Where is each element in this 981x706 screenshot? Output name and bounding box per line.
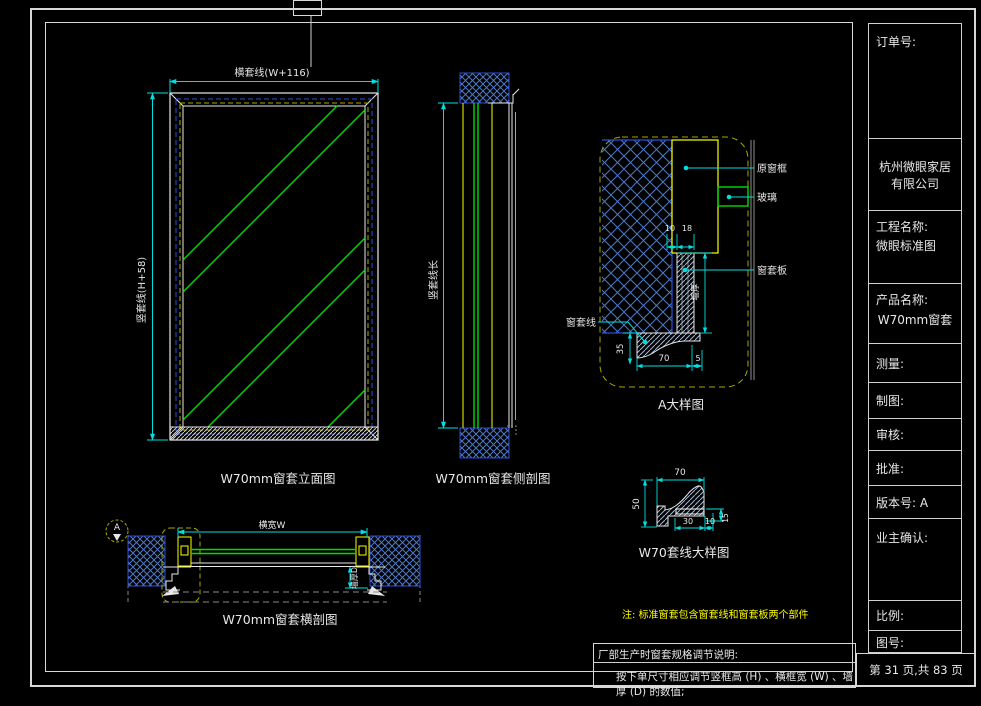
- wall-block-bottom: [460, 428, 509, 458]
- elevation-top-dimension: [170, 79, 378, 93]
- side-left-dimension: [438, 103, 458, 428]
- dim-70-label: 70: [659, 354, 670, 364]
- glass-diagonal-lines: [183, 106, 365, 427]
- label-glass: 玻璃: [757, 191, 777, 204]
- owner-confirm-label: 业主确认:: [869, 519, 961, 546]
- drawing-number-label: 图号:: [876, 634, 904, 651]
- review-label: 审核:: [876, 426, 904, 443]
- line-detail-dim-right: 15: [721, 513, 730, 523]
- measure-label: 测量:: [876, 355, 904, 372]
- product-row: 产品名称: W70mm窗套: [869, 284, 961, 344]
- measure-row: 测量:: [869, 344, 961, 383]
- instruction-box: 厂部生产时窗套规格调节说明: 按下单尺寸相应调节竖框高 (H) 、横框宽 (W)…: [593, 643, 856, 688]
- owner-confirm-row: 业主确认:: [869, 519, 961, 601]
- elevation-dim-left-label: 竖套线(H+58): [135, 257, 148, 324]
- version-label: 版本号: A: [876, 494, 928, 511]
- company-name-line2: 有限公司: [891, 175, 939, 192]
- label-casing-board: 窗套板: [757, 264, 787, 277]
- approve-label: 批准:: [876, 460, 904, 477]
- version-row: 版本号: A: [869, 486, 961, 519]
- elevation-view: 横套线(W+116) 竖套线(H+58) W70mm窗套立面图: [135, 66, 378, 486]
- horizontal-section-caption: W70mm窗套横剖图: [222, 612, 337, 627]
- standard-note: 注: 标准窗套包含窗套线和窗套板两个部件: [622, 606, 852, 621]
- product-value: W70mm窗套: [869, 308, 961, 328]
- order-number-row: 订单号:: [869, 24, 961, 139]
- title-block: 订单号: 杭州微眼家居 有限公司 工程名称: 微眼标准图 产品名称: W70mm…: [868, 23, 962, 653]
- instruction-box-title: 厂部生产时窗套规格调节说明:: [594, 644, 855, 663]
- wall-block-left: [128, 536, 165, 586]
- page-info: 第 31 页,共 83 页: [869, 662, 963, 678]
- line-detail-view: 70 50 30 10 15 W70套线大样图: [632, 468, 730, 560]
- sill-hatch-band: [170, 427, 378, 440]
- order-number-label: 订单号:: [869, 24, 961, 50]
- moulding-arrow-right: [368, 586, 385, 596]
- moulding-arrow-left: [162, 586, 179, 596]
- drawing-canvas: 横套线(W+116) 竖套线(H+58) W70mm窗套立面图: [0, 0, 981, 706]
- scale-row: 比例:: [869, 601, 961, 631]
- detail-a-view: 原窗框 玻璃 窗套板 窗套线 10 18 35: [566, 137, 787, 412]
- side-section-caption: W70mm窗套侧剖图: [435, 471, 550, 486]
- dim-18-label: 18: [682, 224, 692, 233]
- cad-sheet: 横套线(W+116) 竖套线(H+58) W70mm窗套立面图: [0, 0, 981, 706]
- project-row: 工程名称: 微眼标准图: [869, 211, 961, 284]
- product-label: 产品名称:: [869, 284, 961, 308]
- wall-hatch-area: [602, 140, 672, 333]
- side-dim-left-label: 竖套线长: [427, 260, 440, 300]
- review-row: 审核:: [869, 419, 961, 451]
- label-window-frame: 原窗框: [757, 162, 787, 175]
- drawing-number-row: 图号:: [869, 631, 961, 654]
- project-label: 工程名称:: [869, 211, 961, 235]
- dim-35-label: 35: [616, 344, 626, 355]
- horizontal-dim-top-label: 横宽W: [259, 519, 286, 531]
- callout-a-label: A: [114, 523, 121, 533]
- approve-row: 批准:: [869, 451, 961, 486]
- page-footer: 第 31 页,共 83 页: [856, 653, 976, 686]
- dim-10-label: 10: [665, 224, 675, 233]
- dim-wall-label: 墙厚: [690, 283, 701, 301]
- elevation-left-dimension: [147, 93, 168, 440]
- label-casing-line: 窗套线: [566, 316, 596, 329]
- horizontal-section-view: 横宽W 墙厚D A W70mm窗套横剖图: [106, 519, 420, 627]
- wall-block-top: [460, 73, 509, 103]
- line-detail-dim-bottom2: 10: [705, 517, 715, 526]
- line-detail-dim-left: 50: [632, 498, 642, 510]
- elevation-caption: W70mm窗套立面图: [220, 471, 335, 486]
- line-detail-caption: W70套线大样图: [639, 545, 730, 560]
- company-row: 杭州微眼家居 有限公司: [869, 139, 961, 211]
- casing-line-profile: [657, 486, 704, 526]
- line-detail-dim-top: 70: [674, 468, 686, 478]
- project-value: 微眼标准图: [869, 235, 961, 254]
- wall-block-right: [370, 536, 420, 586]
- dim-5-label: 5: [695, 354, 700, 363]
- instruction-box-content: 按下单尺寸相应调节竖框高 (H) 、横框宽 (W) 、墙厚 (D) 的数值;: [594, 663, 855, 699]
- jamb-left: [178, 537, 191, 566]
- draft-label: 制图:: [876, 392, 904, 409]
- company-name-line1: 杭州微眼家居: [879, 158, 951, 175]
- callout-triangle-icon: [113, 534, 121, 541]
- side-section-view: 竖套线长 W70mm窗套侧剖图: [427, 73, 551, 486]
- elevation-dim-top-label: 横套线(W+116): [234, 66, 309, 79]
- line-detail-dim-bottom1: 30: [683, 517, 693, 526]
- jamb-right: [356, 537, 369, 566]
- horizontal-dim-right-label: 墙厚D: [349, 567, 359, 589]
- scale-label: 比例:: [876, 607, 904, 624]
- draft-row: 制图:: [869, 383, 961, 419]
- detail-a-caption: A大样图: [658, 397, 704, 412]
- window-frame-section: [672, 140, 718, 253]
